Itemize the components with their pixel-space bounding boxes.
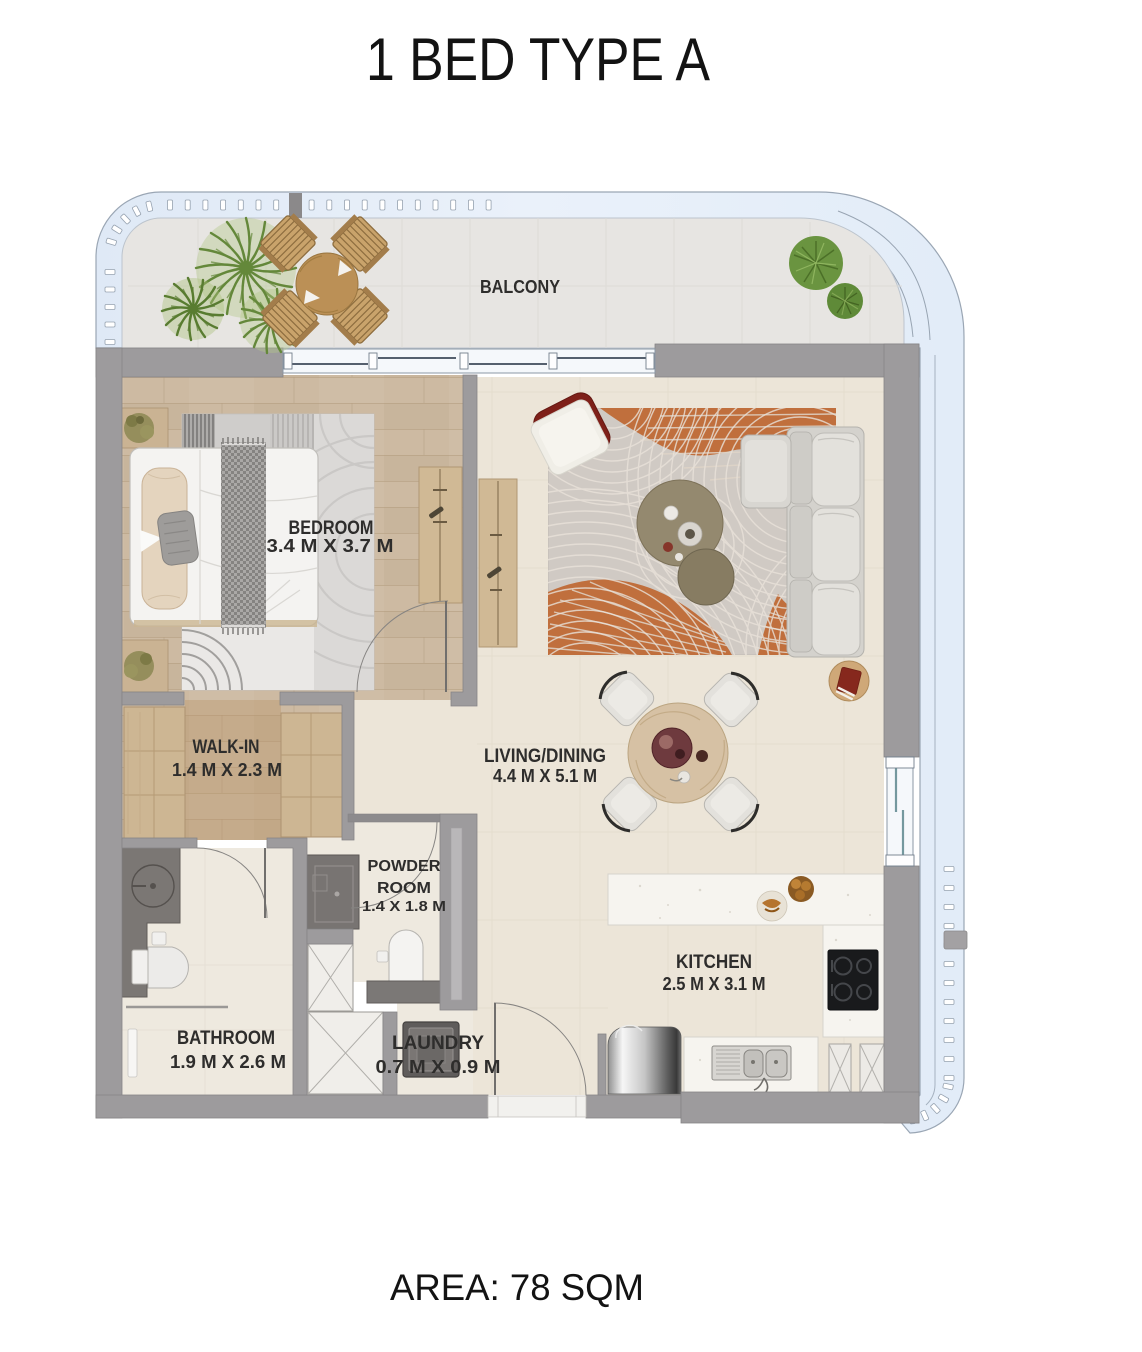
svg-text:ROOM: ROOM	[377, 880, 431, 897]
svg-text:1.9 M X 2.6 M: 1.9 M X 2.6 M	[170, 1052, 286, 1072]
svg-text:BATHROOM: BATHROOM	[177, 1028, 275, 1049]
svg-text:AREA: 78 SQM: AREA: 78 SQM	[390, 1267, 644, 1308]
svg-text:POWDER: POWDER	[368, 858, 441, 875]
svg-text:KITCHEN: KITCHEN	[676, 952, 752, 973]
svg-text:LIVING/DINING: LIVING/DINING	[484, 745, 606, 767]
svg-text:0.7 M X 0.9 M: 0.7 M X 0.9 M	[376, 1057, 501, 1077]
svg-text:LAUNDRY: LAUNDRY	[392, 1033, 484, 1054]
svg-text:3.4 M X 3.7 M: 3.4 M X 3.7 M	[267, 536, 394, 556]
svg-text:BALCONY: BALCONY	[480, 277, 560, 297]
svg-text:1 BED TYPE A: 1 BED TYPE A	[366, 26, 710, 93]
svg-text:2.5 M X 3.1 M: 2.5 M X 3.1 M	[663, 974, 766, 994]
svg-text:1.4 X 1.8 M: 1.4 X 1.8 M	[362, 898, 446, 915]
svg-text:4.4 M X 5.1 M: 4.4 M X 5.1 M	[493, 766, 597, 786]
svg-text:1.4 M X 2.3 M: 1.4 M X 2.3 M	[172, 760, 282, 780]
svg-text:WALK-IN: WALK-IN	[193, 737, 260, 758]
